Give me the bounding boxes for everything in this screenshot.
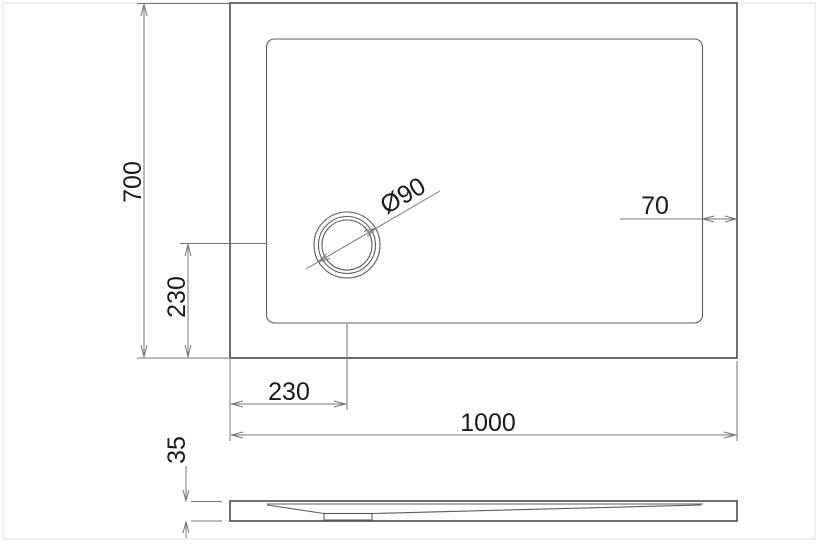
dimension-drain-from-left-230: 230 [230, 324, 347, 441]
dimension-rim-70: 70 [620, 192, 736, 222]
page-border [3, 3, 815, 539]
top-view [230, 3, 737, 358]
right-slope-line [372, 505, 701, 514]
dimension-label-drain-bottom: 230 [163, 276, 191, 318]
drain-boss [324, 514, 372, 521]
dimension-label-rim: 70 [641, 192, 669, 220]
shower-tray-drawing: 700 230 230 1000 [0, 0, 818, 550]
technical-drawing-page: 700 230 230 1000 [0, 0, 818, 550]
dimension-drain-diameter-90: Ø90 [306, 172, 440, 269]
tray-outer-outline [230, 3, 737, 358]
side-view [230, 501, 737, 521]
dimension-drain-from-bottom-230: 230 [163, 244, 267, 358]
dimension-label-drain-left: 230 [268, 378, 310, 406]
dimension-height-35: 35 [163, 436, 222, 538]
left-slope-line [267, 505, 324, 514]
dimension-label-depth: 700 [119, 161, 147, 203]
dimension-label-height: 35 [163, 436, 191, 464]
dimension-label-width: 1000 [460, 409, 516, 437]
tray-inner-rim [267, 39, 703, 323]
